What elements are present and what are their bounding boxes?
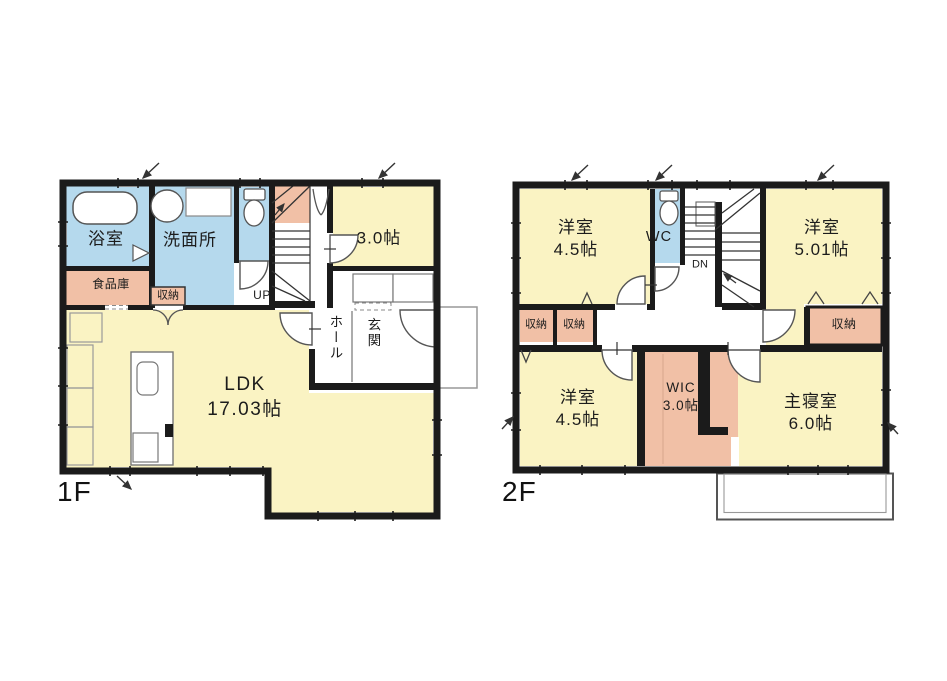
label-room-tr-name: 洋室 [804,218,840,237]
roof-arrow-icon [379,163,395,178]
roof-arrow-icon [656,165,672,180]
washroom-counter [186,188,231,216]
wall [637,348,645,466]
washbasin [151,190,183,222]
kitchen-sink [137,362,158,395]
wall [63,266,155,271]
label-master-size: 6.0帖 [789,414,834,433]
wall [327,183,333,233]
wall [63,305,105,310]
roof-arrow-icon [818,165,834,180]
floor-plan-2f: 洋室 4.5帖 WC DN 洋室 5.01帖 収納 収納 収納 洋室 4.5帖 … [516,185,886,470]
understairs-folding-door [313,189,329,215]
label-ldk: LDK 17.03帖 [207,372,283,422]
stair-center-wall [715,202,722,307]
floor-tag-1f: 1F [57,476,92,508]
label-room-tl-name: 洋室 [558,218,594,237]
entrance-porch [438,307,477,388]
wall [804,307,810,347]
wic-inner-wall [698,427,728,435]
roof-arrow-icon [572,165,588,180]
label-ldk-size: 17.03帖 [207,399,283,420]
pantry-sliding-door [105,306,128,310]
label-closet-left1: 収納 [525,320,547,331]
floor-plan-1f: 浴室 洗面所 食品庫 収納 UP 3.0帖 ホール 玄関 LDK 17.03帖 [63,183,438,516]
label-bathroom: 浴室 [88,231,124,248]
label-room-tr: 洋室 5.01帖 [794,217,849,261]
floor-plan-1f-drawing [51,159,491,523]
wall [128,305,153,310]
label-wic-size: 3.0帖 [663,398,699,413]
label-master-bedroom: 主寝室 6.0帖 [784,391,838,435]
toilet-door-swing [240,261,268,289]
bathtub [73,192,137,224]
step-arrow-icon [117,476,131,489]
balcony [717,474,893,520]
label-master-name: 主寝室 [784,392,838,411]
label-room3: 3.0帖 [357,230,402,247]
wc-door-swing [655,267,679,291]
label-room-tl: 洋室 4.5帖 [554,217,599,261]
wall [327,266,437,271]
label-pantry: 食品庫 [92,278,130,290]
label-wc: WC [646,230,672,245]
roof-arrow-icon [143,163,159,178]
wall-tick-icon [502,417,513,429]
wall [516,345,602,352]
wall [516,304,615,310]
label-closet-1f: 収納 [157,291,179,302]
kitchen-wall-stub [165,424,173,437]
label-closet-right: 収納 [831,318,856,330]
toilet-2f [660,191,678,225]
wall [680,185,685,265]
label-stairs-up: UP [253,289,271,301]
wall [183,305,275,310]
wall [309,383,437,390]
label-room-bl: 洋室 4.5帖 [556,387,601,431]
toilet-1f [244,189,265,226]
label-washroom: 洗面所 [163,232,217,249]
label-wic: WIC 3.0帖 [663,379,699,415]
wall [309,349,315,385]
label-ldk-name: LDK [224,374,265,395]
shoe-cabinet [353,274,433,310]
label-room-bl-size: 4.5帖 [556,410,601,429]
entrance-door-swing [400,310,437,347]
wall [760,185,766,310]
wall [760,345,882,352]
label-room-bl-name: 洋室 [560,388,596,407]
label-wic-name: WIC [666,380,695,395]
wall [647,304,655,310]
wic-inner-wall [698,352,710,433]
wall [269,301,315,308]
wall [593,304,597,347]
wall [234,183,239,263]
wic-opening [731,437,739,466]
label-stairs-down: DN [692,260,708,271]
label-hall: ホール [327,315,342,362]
stairs-down [685,189,760,307]
wall [632,345,728,352]
floor-plan-page: 浴室 洗面所 食品庫 収納 UP 3.0帖 ホール 玄関 LDK 17.03帖 [0,0,947,681]
label-room-tl-size: 4.5帖 [554,240,599,259]
label-entrance: 玄関 [365,318,380,349]
wall [553,309,557,345]
label-closet-left2: 収納 [563,320,585,331]
kitchen-counter [131,352,173,465]
floor-tag-2f: 2F [502,476,537,508]
label-room-tr-size: 5.01帖 [794,240,849,259]
